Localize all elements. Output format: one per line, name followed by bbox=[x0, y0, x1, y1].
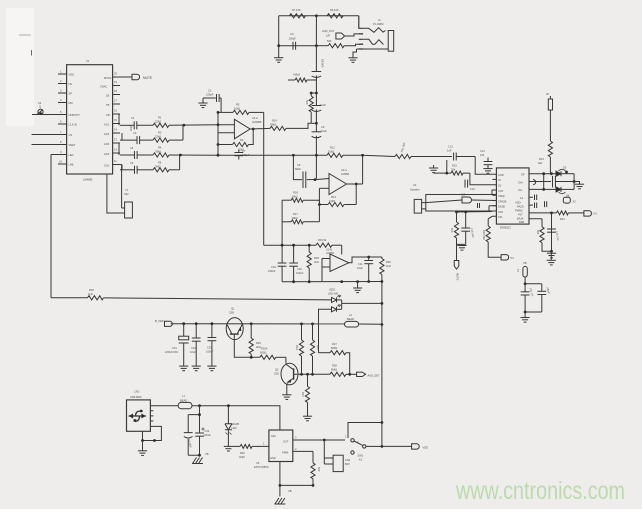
svg-text:R8 560: R8 560 bbox=[321, 59, 325, 68]
svg-text:U1-A: U1-A bbox=[252, 116, 258, 120]
svg-text:OUT: OUT bbox=[283, 440, 289, 444]
svg-text:C12: C12 bbox=[480, 149, 485, 153]
svg-text:20kΩ: 20kΩ bbox=[292, 195, 298, 199]
svg-text:PJ-392M: PJ-392M bbox=[373, 22, 383, 26]
svg-text:CB: CB bbox=[106, 113, 110, 117]
svg-text:68nF: 68nF bbox=[295, 167, 301, 171]
svg-text:1A: 1A bbox=[520, 196, 523, 200]
svg-text:SW1: SW1 bbox=[358, 454, 364, 458]
svg-text:100pF: 100pF bbox=[289, 37, 297, 41]
svg-text:VDAC: VDAC bbox=[100, 85, 107, 89]
svg-text:3MΩ: 3MΩ bbox=[155, 165, 161, 169]
svg-text:Y1: Y1 bbox=[125, 188, 129, 192]
svg-text:Q: Q bbox=[39, 105, 41, 109]
svg-text:U5: U5 bbox=[256, 461, 260, 465]
svg-text:LM4985: LM4985 bbox=[252, 120, 262, 124]
svg-text:PWM: PWM bbox=[282, 451, 288, 455]
svg-text:1kΩ: 1kΩ bbox=[538, 161, 543, 165]
svg-text:C3: C3 bbox=[133, 131, 137, 135]
svg-text:CLK IN: CLK IN bbox=[69, 123, 77, 127]
svg-text:IN: IN bbox=[498, 178, 501, 182]
svg-text:C19: C19 bbox=[271, 265, 276, 269]
svg-text:100: 100 bbox=[461, 193, 466, 197]
svg-text:BEAD: BEAD bbox=[180, 398, 187, 402]
svg-text:2SB: 2SB bbox=[229, 311, 234, 315]
svg-text:K4: K4 bbox=[511, 256, 515, 260]
svg-text:AOR: AOR bbox=[498, 173, 504, 177]
svg-text:U2-A: U2-A bbox=[341, 168, 347, 172]
svg-text:39kΩ: 39kΩ bbox=[155, 150, 161, 154]
svg-text:GND/STT: GND/STT bbox=[69, 113, 81, 117]
svg-text:C4: C4 bbox=[130, 146, 134, 150]
svg-text:MUTE: MUTE bbox=[143, 76, 152, 80]
svg-text:BEAD: BEAD bbox=[347, 317, 354, 321]
svg-text:100uF: 100uF bbox=[206, 350, 214, 354]
svg-text:R19: R19 bbox=[539, 157, 544, 161]
svg-text:LED: LED bbox=[69, 153, 74, 157]
svg-text:240uF: 240uF bbox=[204, 433, 212, 437]
svg-text:86kΩ: 86kΩ bbox=[331, 368, 337, 372]
svg-text:NC: NC bbox=[69, 82, 73, 86]
svg-text:560: 560 bbox=[317, 467, 321, 472]
svg-text:TB: TB bbox=[106, 103, 110, 107]
svg-text:1kΩ: 1kΩ bbox=[88, 292, 93, 296]
svg-text:22kΩ: 22kΩ bbox=[155, 135, 161, 139]
svg-text:R35: R35 bbox=[316, 345, 320, 350]
svg-text:R1: R1 bbox=[158, 116, 162, 120]
svg-text:S1: S1 bbox=[38, 101, 42, 105]
svg-text:LM4985: LM4985 bbox=[83, 178, 93, 182]
svg-text:U2-B: U2-B bbox=[326, 248, 332, 252]
svg-text:DA2B: DA2B bbox=[498, 205, 505, 209]
svg-text:R6: R6 bbox=[158, 161, 162, 165]
svg-text:C7: C7 bbox=[242, 149, 246, 153]
svg-text:R18: R18 bbox=[293, 191, 298, 195]
svg-text:www.cntronics.com: www.cntronics.com bbox=[455, 477, 625, 505]
svg-text:CN3: CN3 bbox=[345, 458, 351, 462]
svg-text:10uF: 10uF bbox=[190, 350, 196, 354]
svg-text:AO2: AO2 bbox=[104, 132, 110, 136]
svg-text:104: 104 bbox=[480, 153, 485, 157]
svg-text:B_VDD: B_VDD bbox=[155, 319, 164, 323]
svg-text:SD2/B: SD2/B bbox=[232, 422, 240, 426]
svg-text:1kΩ: 1kΩ bbox=[386, 264, 391, 268]
svg-text:C33: C33 bbox=[207, 346, 212, 350]
svg-text:PWM2: PWM2 bbox=[515, 209, 523, 213]
svg-text:39kΩ: 39kΩ bbox=[292, 216, 298, 220]
svg-text:4k99: 4k99 bbox=[239, 455, 245, 459]
svg-text:CS: CS bbox=[69, 133, 73, 137]
svg-text:Speaker: Speaker bbox=[410, 188, 420, 192]
svg-text:10uF: 10uF bbox=[320, 103, 326, 107]
svg-text:CPA2B: CPA2B bbox=[498, 199, 507, 203]
svg-text:22kΩ: 22kΩ bbox=[155, 120, 161, 124]
svg-text:GND: GND bbox=[270, 456, 276, 460]
svg-text:C31: C31 bbox=[172, 346, 177, 350]
svg-text:AUD_DET: AUD_DET bbox=[368, 374, 381, 378]
svg-text:U1: U1 bbox=[86, 59, 90, 63]
svg-text:R33: R33 bbox=[89, 288, 94, 292]
svg-text:D2B: D2B bbox=[519, 220, 524, 224]
svg-text:R38: R38 bbox=[332, 364, 337, 368]
svg-text:Q2: Q2 bbox=[275, 368, 279, 372]
svg-text:R25A: R25A bbox=[261, 347, 268, 351]
svg-text:SP: SP bbox=[69, 92, 73, 96]
svg-text:K1: K1 bbox=[359, 458, 363, 462]
svg-text:X2: X2 bbox=[573, 200, 577, 204]
svg-text:D5: D5 bbox=[563, 166, 567, 170]
svg-text:GO1: GO1 bbox=[104, 164, 110, 168]
svg-text:560Ω: 560Ω bbox=[260, 351, 266, 355]
svg-text:STL: STL bbox=[498, 215, 503, 219]
svg-text:10kΩ: 10kΩ bbox=[329, 199, 335, 203]
svg-text:2kΩ: 2kΩ bbox=[314, 260, 319, 264]
svg-text:C10: C10 bbox=[470, 187, 475, 191]
svg-text:R5: R5 bbox=[236, 103, 240, 107]
svg-text:LED A/B: LED A/B bbox=[328, 292, 338, 296]
svg-text:R31 5k: R31 5k bbox=[318, 238, 327, 242]
svg-text:SV: SV bbox=[498, 184, 502, 188]
svg-text:Q1: Q1 bbox=[231, 307, 235, 311]
svg-text:VB: VB bbox=[288, 489, 292, 493]
svg-text:C9: C9 bbox=[321, 125, 325, 129]
svg-text:VDDp: VDDp bbox=[498, 194, 505, 198]
svg-text:R15: R15 bbox=[452, 164, 457, 168]
svg-text:240uF: 240uF bbox=[268, 269, 276, 273]
svg-text:C13: C13 bbox=[448, 145, 453, 149]
svg-text:R3: R3 bbox=[158, 131, 162, 135]
svg-text:S2A: S2A bbox=[271, 434, 276, 438]
svg-text:R17: R17 bbox=[293, 212, 298, 216]
svg-text:R30: R30 bbox=[386, 260, 391, 264]
svg-text:C6: C6 bbox=[130, 161, 134, 165]
svg-text:C11: C11 bbox=[358, 262, 363, 266]
svg-text:C2: C2 bbox=[208, 89, 212, 93]
svg-text:LM358: LM358 bbox=[326, 251, 334, 255]
svg-text:BA14: BA14 bbox=[517, 217, 524, 221]
svg-text:R2: R2 bbox=[240, 138, 244, 142]
svg-text:R9 100: R9 100 bbox=[330, 8, 339, 12]
svg-text:2SD: 2SD bbox=[274, 372, 279, 376]
svg-text:C1: C1 bbox=[131, 116, 135, 120]
svg-text:JP: JP bbox=[546, 92, 549, 96]
svg-text:R12: R12 bbox=[330, 146, 335, 150]
svg-text:VB: VB bbox=[205, 452, 209, 456]
svg-text:100uF: 100uF bbox=[296, 271, 304, 275]
svg-text:10uF: 10uF bbox=[321, 129, 327, 133]
svg-text:VCP: VCP bbox=[498, 189, 504, 193]
svg-text:OA+: OA+ bbox=[518, 180, 524, 184]
svg-text:K3: K3 bbox=[594, 212, 598, 216]
svg-text:860Ω: 860Ω bbox=[331, 346, 337, 350]
svg-text:BT8952C: BT8952C bbox=[500, 226, 511, 230]
svg-text:C5: C5 bbox=[297, 163, 301, 167]
svg-text:MUTE: MUTE bbox=[456, 273, 460, 281]
svg-text:4.8kΩ: 4.8kΩ bbox=[293, 73, 300, 77]
svg-text:SP: SP bbox=[521, 173, 525, 177]
svg-text:LB: LB bbox=[106, 94, 109, 98]
svg-text:PA2D: PA2D bbox=[517, 205, 524, 209]
svg-text:CN1: CN1 bbox=[134, 390, 140, 394]
svg-text:220pF: 220pF bbox=[206, 93, 214, 97]
svg-text:VDD: VDD bbox=[69, 73, 75, 77]
svg-text:DM: DM bbox=[69, 101, 73, 105]
svg-text:R27: R27 bbox=[301, 392, 305, 397]
svg-text:AUD_OUT: AUD_OUT bbox=[322, 29, 335, 33]
svg-text:LED1: LED1 bbox=[329, 288, 336, 292]
svg-text:C20: C20 bbox=[297, 267, 302, 271]
svg-text:LM358: LM358 bbox=[341, 172, 349, 176]
svg-text:10uF: 10uF bbox=[357, 266, 363, 270]
svg-text:AO4: AO4 bbox=[104, 152, 110, 156]
svg-text:2n2F: 2n2F bbox=[129, 125, 133, 131]
svg-text:560: 560 bbox=[305, 100, 309, 105]
svg-text:OA-: OA- bbox=[518, 188, 523, 192]
svg-text:R26: R26 bbox=[256, 341, 261, 345]
svg-text:C24: C24 bbox=[205, 429, 210, 433]
svg-text:AO3: AO3 bbox=[104, 142, 110, 146]
svg-text:MUTE: MUTE bbox=[104, 76, 112, 80]
svg-text:CC: CC bbox=[290, 32, 294, 36]
svg-text:4VT: 4VT bbox=[518, 213, 523, 217]
svg-text:R34: R34 bbox=[295, 345, 299, 350]
svg-text:220UF/16V: 220UF/16V bbox=[165, 350, 178, 354]
svg-text:USB MDF: USB MDF bbox=[130, 395, 142, 399]
svg-text:1uF: 1uF bbox=[447, 149, 452, 153]
svg-text:VB: VB bbox=[523, 261, 527, 265]
svg-text:R14: R14 bbox=[272, 119, 277, 123]
svg-text:X32: X32 bbox=[124, 192, 129, 196]
svg-text:R20 560: R20 560 bbox=[482, 230, 486, 240]
svg-text:560: 560 bbox=[450, 228, 454, 233]
svg-text:BAT: BAT bbox=[345, 462, 350, 466]
svg-text:10kΩ: 10kΩ bbox=[328, 149, 334, 153]
svg-text:560: 560 bbox=[327, 39, 332, 43]
svg-text:10kΩ: 10kΩ bbox=[234, 107, 240, 111]
svg-text:VDET: VDET bbox=[69, 143, 76, 147]
svg-text:EST7C6BTA: EST7C6BTA bbox=[254, 465, 269, 469]
svg-text:C32: C32 bbox=[191, 346, 196, 350]
svg-text:R40: R40 bbox=[240, 451, 245, 455]
svg-text:VDD: VDD bbox=[423, 446, 429, 450]
svg-text:R28: R28 bbox=[314, 256, 319, 260]
svg-text:LAB: LAB bbox=[69, 163, 74, 167]
svg-text:U2: U2 bbox=[413, 183, 417, 187]
svg-text:R13: R13 bbox=[331, 195, 336, 199]
svg-text:AO1: AO1 bbox=[104, 123, 110, 127]
svg-text:R37: R37 bbox=[332, 342, 337, 346]
svg-text:20k: 20k bbox=[451, 167, 456, 171]
svg-text:ATD: ATD bbox=[498, 210, 503, 214]
svg-text:562: 562 bbox=[536, 230, 540, 235]
svg-text:R7 100: R7 100 bbox=[292, 8, 301, 12]
svg-text:R4: R4 bbox=[158, 146, 162, 150]
svg-text:VDD-: VDD- bbox=[515, 201, 521, 205]
svg-text:L/R: L/R bbox=[326, 34, 330, 38]
svg-text:39kΩ: 39kΩ bbox=[270, 123, 276, 127]
svg-text:LED: LED bbox=[232, 426, 237, 430]
svg-text:R21: R21 bbox=[560, 217, 565, 221]
